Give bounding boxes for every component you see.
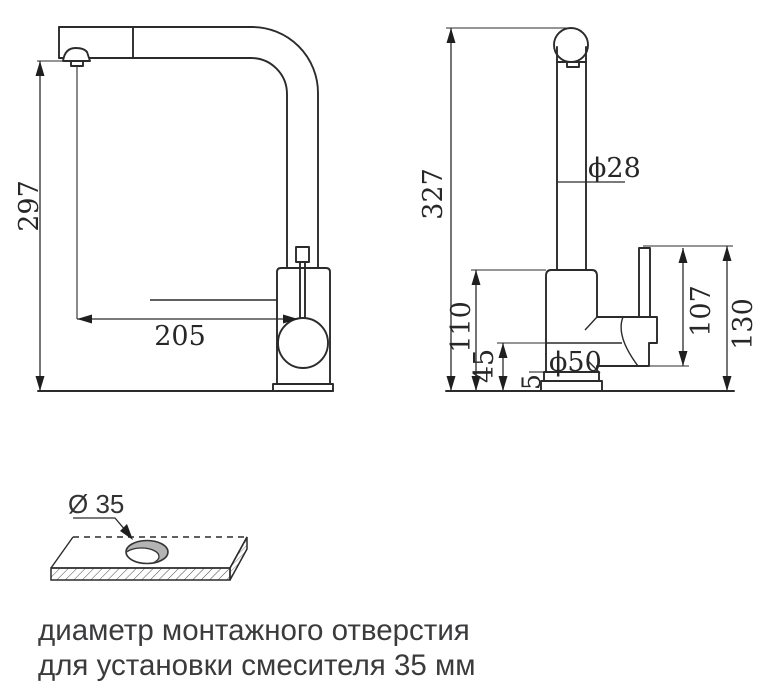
mount-hole-diameter-label: Ø 35 [68,489,124,519]
dim-phi50-label: ϕ50 [549,347,602,378]
caption-block: диаметр монтажного отверстия для установ… [38,614,476,682]
handle-lever-front [639,248,650,317]
technical-drawing: 297 205 327 ϕ28 110 [0,0,770,693]
lever-cap-side [296,247,309,262]
dim-110-label: 110 [446,301,477,353]
dim-107-arrow-up [679,248,688,263]
dim-130-arrow-up [723,246,732,261]
dim-5-label: 5 [517,374,546,390]
countertop-front-face [51,568,230,580]
aerator-tip-front [567,62,579,67]
base-plate-side [273,384,333,391]
side-view: 297 205 [14,27,333,391]
dim-327-label: 327 [418,168,449,220]
base-plate-lower [541,381,602,391]
aerator-tip [71,61,83,66]
front-view: 327 ϕ28 110 45 5 ϕ50 107 130 [418,28,759,391]
dim-phi28-label: ϕ28 [588,153,641,184]
handle-ball-side [278,318,328,368]
dim-297-arrow-down [36,376,45,391]
dim-130-arrow-down [723,376,732,391]
spout-outer-edge [59,27,318,268]
spout-inner-edge [59,58,287,268]
dim-205-label: 205 [154,321,206,352]
dim-110-arrow-up [472,270,481,285]
spout-ball-front [554,28,588,62]
caption-line-2: для установки смесителя 35 мм [38,649,476,682]
mount-hole-leader [73,518,131,537]
dim-130-label: 130 [728,298,759,350]
dim-327-arrow-down [447,376,456,391]
mount-hole-diagram: Ø 35 [51,489,247,580]
dim-45-label: 45 [469,349,500,383]
caption-line-1: диаметр монтажного отверстия [38,614,470,647]
dim-107-label: 107 [686,285,717,337]
dim-107-arrow-down [679,351,688,366]
faucet-technical-drawing-page: 297 205 327 ϕ28 110 [0,0,770,693]
dim-327-arrow-up [447,28,456,43]
dim-297-label: 297 [14,180,45,232]
dim-297-arrow-up [36,61,45,76]
dim-205-arrow-left [77,315,92,324]
spout-pipe-front [557,62,586,270]
aerator-nozzle [63,48,90,61]
